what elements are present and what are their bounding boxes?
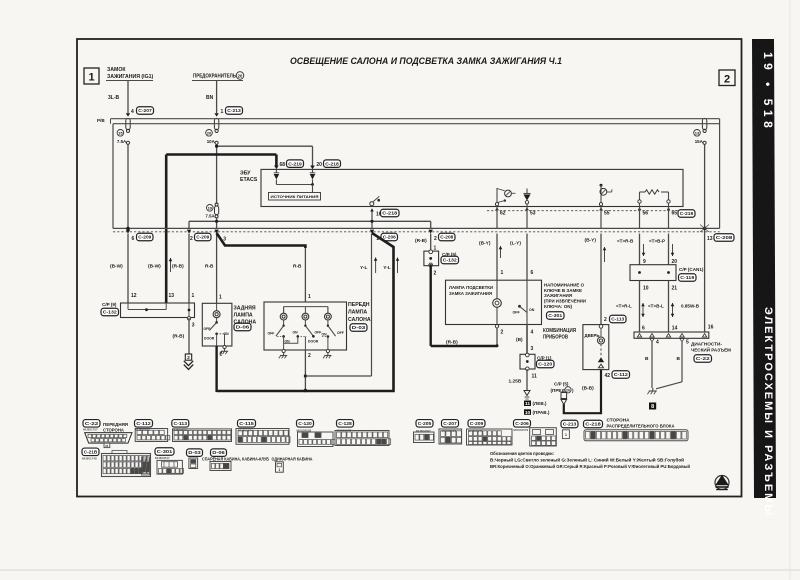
svg-text:MU801757: MU801757: [83, 428, 98, 432]
svg-text:15A: 15A: [695, 139, 704, 144]
svg-text:КЛЮЧЕ В ЗАМКЕ: КЛЮЧЕ В ЗАМКЕ: [544, 288, 582, 293]
svg-text:ЗАЖИГАНИЯ (IG1): ЗАЖИГАНИЯ (IG1): [107, 74, 154, 80]
svg-text:10A: 10A: [207, 139, 216, 144]
svg-text:(B-Y): (B-Y): [585, 238, 597, 244]
svg-text:ЗАДНЯЯ: ЗАДНЯЯ: [234, 305, 256, 311]
svg-text:13: 13: [695, 131, 700, 136]
svg-text:C-213: C-213: [227, 108, 241, 113]
svg-text:14: 14: [672, 326, 678, 332]
svg-text:20: 20: [566, 389, 570, 393]
svg-text:62: 62: [500, 210, 506, 216]
svg-text:САЛОНА: САЛОНА: [348, 317, 371, 323]
svg-text:C-206: C-206: [383, 235, 396, 240]
svg-text:11: 11: [532, 374, 538, 380]
svg-text:11: 11: [525, 401, 530, 407]
svg-text:13: 13: [707, 236, 713, 242]
svg-text:C-213: C-213: [563, 422, 577, 427]
svg-text:56: 56: [643, 210, 649, 216]
svg-text:C-218: C-218: [382, 211, 398, 216]
svg-text:(B-W): (B-W): [148, 264, 161, 270]
svg-text:C-218: C-218: [325, 161, 339, 166]
svg-text:<T>R-L: <T>R-L: [616, 304, 632, 309]
svg-text:(R-B): (R-B): [415, 238, 427, 244]
svg-text:Y-L: Y-L: [383, 265, 391, 271]
svg-text:C-301: C-301: [548, 313, 562, 318]
svg-text:ОДИНАРНАЯ КАБИНА: ОДИНАРНАЯ КАБИНА: [272, 457, 314, 462]
svg-text:<T>B-L: <T>B-L: [648, 304, 664, 309]
svg-text:C/P (CAN1): C/P (CAN1): [679, 267, 704, 272]
svg-text:1: 1: [565, 433, 567, 437]
svg-text:42: 42: [605, 373, 611, 379]
svg-text:MU801579: MU801579: [514, 428, 529, 432]
svg-text:C-219: C-219: [288, 161, 302, 166]
svg-text:2: 2: [434, 271, 437, 277]
svg-text:ЧЕСКИЙ РАЗЪЕМ: ЧЕСКИЙ РАЗЪЕМ: [691, 346, 731, 353]
svg-text:3: 3: [192, 323, 195, 329]
svg-text:ЛАМПА: ЛАМПА: [348, 310, 367, 316]
svg-text:6: 6: [531, 270, 534, 276]
svg-text:ПЕРЕДНЯЯ: ПЕРЕДНЯЯ: [103, 422, 128, 427]
svg-text:OFF: OFF: [204, 327, 211, 331]
svg-text:ПЕРЕДН: ПЕРЕДН: [348, 302, 370, 308]
svg-text:C-205: C-205: [418, 421, 432, 426]
svg-text:C-120: C-120: [538, 362, 552, 367]
svg-text:C-112: C-112: [136, 421, 151, 426]
svg-text:C-208: C-208: [716, 235, 733, 240]
svg-text:ЭБУ: ЭБУ: [240, 171, 251, 177]
svg-text:C-113: C-113: [611, 317, 624, 322]
svg-text:1: 1: [221, 109, 224, 115]
svg-text:C-132: C-132: [103, 310, 117, 315]
svg-text:C-132: C-132: [443, 258, 457, 263]
svg-text:D-03: D-03: [188, 450, 201, 455]
svg-text:C-209: C-209: [138, 235, 151, 240]
svg-text:20: 20: [316, 162, 322, 168]
svg-text:(B-W): (B-W): [110, 264, 123, 270]
svg-text:СТОРОНА: СТОРОНА: [607, 418, 631, 423]
svg-text:(L-Y): (L-Y): [510, 240, 521, 246]
svg-text:1: 1: [88, 72, 94, 84]
svg-text:C-208: C-208: [440, 235, 453, 240]
svg-text:(ПРАВ.): (ПРАВ.): [533, 410, 550, 415]
svg-text:2: 2: [308, 353, 311, 359]
svg-text:ON: ON: [293, 330, 299, 334]
svg-text:9: 9: [643, 259, 646, 265]
svg-text:2: 2: [604, 317, 607, 323]
svg-text:65: 65: [672, 210, 678, 216]
svg-text:2: 2: [724, 74, 730, 86]
svg-text:20: 20: [672, 259, 678, 265]
svg-text:B: B: [645, 356, 649, 362]
svg-text:ЗАЖИГАНИЯ: ЗАЖИГАНИЯ: [544, 293, 572, 298]
svg-text:C/P (5): C/P (5): [554, 381, 569, 386]
svg-text:R-B: R-B: [205, 264, 214, 270]
svg-text:D-06: D-06: [236, 325, 250, 330]
svg-text:ЗАМКА ЗАЖИГАНИЯ: ЗАМКА ЗАЖИГАНИЯ: [449, 291, 492, 296]
svg-text:55: 55: [604, 210, 610, 216]
svg-text:2: 2: [434, 236, 437, 242]
svg-text:21: 21: [672, 286, 678, 292]
svg-text:ЭЛЕКТРОСХЕМЫ И РАЗЪЕМЫ: ЭЛЕКТРОСХЕМЫ И РАЗЪЕМЫ: [762, 307, 774, 517]
svg-text:4: 4: [131, 109, 134, 115]
svg-text:Обозначения цветов проводки:: Обозначения цветов проводки:: [490, 450, 554, 456]
svg-text:1: 1: [501, 270, 504, 276]
svg-text:1: 1: [308, 294, 311, 300]
svg-text:0.85W-B: 0.85W-B: [681, 304, 700, 309]
svg-text:2: 2: [187, 355, 190, 361]
svg-text:(R-B): (R-B): [173, 334, 185, 340]
svg-text:OFF: OFF: [315, 330, 322, 334]
svg-text:ON: ON: [322, 332, 328, 336]
svg-text:BR:Коричневый O:Оранжевый GR:С: BR:Коричневый O:Оранжевый GR:Серый R:Кра…: [490, 464, 690, 469]
svg-text:C-209: C-209: [196, 235, 209, 240]
svg-text:C/P (9): C/P (9): [102, 302, 117, 307]
svg-text:19 • 518: 19 • 518: [761, 52, 775, 132]
svg-text:ON: ON: [529, 308, 535, 312]
svg-text:16: 16: [708, 325, 714, 331]
svg-text:(R-B): (R-B): [446, 340, 458, 346]
svg-text:C-112: C-112: [614, 372, 628, 377]
svg-text:3: 3: [531, 346, 534, 352]
svg-text:4: 4: [656, 340, 659, 346]
svg-text:2: 2: [190, 236, 193, 242]
svg-text:Y-L: Y-L: [360, 265, 368, 271]
svg-text:1: 1: [219, 295, 222, 301]
svg-text:C-113: C-113: [174, 421, 188, 426]
svg-text:5: 5: [686, 340, 689, 346]
svg-text:MU801748: MU801748: [82, 457, 97, 461]
svg-text:OFF: OFF: [513, 310, 521, 314]
svg-text:C-21B: C-21B: [84, 449, 98, 454]
svg-text:10: 10: [525, 410, 531, 416]
svg-text:ДИАГНОСТИ-: ДИАГНОСТИ-: [691, 342, 722, 347]
svg-text:8: 8: [651, 404, 654, 410]
svg-text:В:Черный LG:Светло зеленый G:З: В:Черный LG:Светло зеленый G:Зеленый L: …: [490, 458, 684, 463]
svg-text:C-128: C-128: [338, 421, 352, 426]
svg-text:1: 1: [279, 468, 281, 472]
svg-text:7.5A: 7.5A: [205, 213, 215, 218]
svg-text:3L-B: 3L-B: [108, 95, 120, 101]
svg-text:2: 2: [220, 352, 223, 358]
svg-text:D-03: D-03: [352, 325, 366, 330]
svg-text:<T>R-B: <T>R-B: [617, 239, 634, 244]
svg-text:ON: ON: [285, 339, 291, 343]
svg-text:ПРЕДОХРАНИТЕЛЬ: ПРЕДОХРАНИТЕЛЬ: [193, 74, 236, 80]
svg-text:СТОРОНА: СТОРОНА: [103, 427, 125, 432]
svg-text:4: 4: [531, 330, 534, 336]
svg-text:КЛЮЧА: ON): КЛЮЧА: ON): [544, 304, 573, 309]
svg-text:DOOR: DOOR: [308, 340, 319, 344]
svg-text:MU803547: MU803547: [155, 456, 170, 460]
svg-text:13: 13: [169, 293, 175, 299]
svg-text:РАСПРЕДЕЛИТЕЛЬНОГО БЛОКА: РАСПРЕДЕЛИТЕЛЬНОГО БЛОКА: [607, 424, 676, 429]
svg-text:C-119: C-119: [680, 275, 694, 280]
svg-text:53: 53: [530, 210, 536, 216]
svg-text:C-301: C-301: [157, 449, 173, 454]
svg-text:ЛАМПА: ЛАМПА: [234, 312, 253, 318]
svg-text:C-218: C-218: [585, 422, 601, 427]
svg-text:(R-B): (R-B): [172, 264, 184, 270]
svg-text:(ПРИ ИЗВЛЕЧЕНИИ: (ПРИ ИЗВЛЕЧЕНИИ: [544, 299, 586, 304]
svg-text:D-06: D-06: [212, 450, 225, 455]
svg-text:СПАРЕНАЯ КАБИНА, КАБИНА-КЛУБ: СПАРЕНАЯ КАБИНА, КАБИНА-КЛУБ: [202, 457, 269, 462]
svg-text:1.25B: 1.25B: [509, 379, 522, 385]
svg-text:ОСВЕЩЕНИЕ САЛОНА И ПОДСВЕТКА З: ОСВЕЩЕНИЕ САЛОНА И ПОДСВЕТКА ЗАМКА ЗАЖИГ…: [290, 56, 562, 66]
svg-text:20: 20: [207, 131, 212, 136]
svg-text:C-22: C-22: [85, 421, 99, 426]
svg-text:OFF: OFF: [268, 331, 275, 335]
svg-text:C-209: C-209: [470, 421, 484, 426]
svg-text:ЗАМОК: ЗАМОК: [107, 67, 126, 73]
svg-text:21: 21: [105, 444, 109, 448]
svg-text:C-207: C-207: [443, 421, 457, 426]
svg-text:P/B: P/B: [97, 118, 105, 123]
svg-text:ИСТОЧНИК ПИТАНИЯ: ИСТОЧНИК ПИТАНИЯ: [271, 195, 320, 199]
svg-text:C-206: C-206: [515, 421, 529, 426]
svg-text:<T>B-P: <T>B-P: [649, 239, 665, 244]
svg-text:C-219: C-219: [680, 211, 694, 216]
svg-text:(B-B): (B-B): [582, 386, 594, 392]
svg-text:DOOR: DOOR: [204, 336, 215, 340]
svg-text:ЛАМПА ПОДСВЕТКИ: ЛАМПА ПОДСВЕТКИ: [449, 285, 493, 290]
svg-text:C-115: C-115: [239, 421, 254, 426]
svg-text:(ЛЕВ.): (ЛЕВ.): [533, 401, 547, 406]
svg-text:1: 1: [192, 293, 195, 299]
svg-text:2: 2: [501, 330, 504, 336]
svg-text:10: 10: [643, 286, 649, 292]
svg-text:B: B: [677, 356, 681, 362]
svg-text:C-207: C-207: [138, 108, 152, 113]
svg-text:OFF: OFF: [337, 331, 344, 335]
svg-text:C-22: C-22: [696, 356, 711, 361]
svg-text:19: 19: [208, 206, 213, 211]
svg-text:7.5A: 7.5A: [117, 139, 127, 144]
svg-text:6: 6: [642, 326, 645, 332]
svg-text:НАПОМИНАНИЕ О: НАПОМИНАНИЕ О: [544, 283, 585, 288]
svg-text:R-B: R-B: [293, 264, 302, 270]
svg-text:ДВЕРЬ: ДВЕРЬ: [585, 333, 600, 338]
svg-text:BN: BN: [206, 95, 214, 101]
svg-text:ПРИБОРОВ: ПРИБОРОВ: [543, 334, 568, 340]
svg-text:20: 20: [238, 73, 243, 78]
svg-text:68: 68: [280, 162, 286, 168]
svg-text:(B-Y): (B-Y): [479, 240, 491, 246]
svg-text:15: 15: [118, 131, 123, 136]
svg-text:6: 6: [132, 236, 135, 242]
svg-text:C-120: C-120: [298, 421, 312, 426]
svg-text:(B): (B): [516, 337, 523, 343]
svg-text:12: 12: [131, 293, 137, 299]
svg-text:КОМБИНАЦИЯ: КОМБИНАЦИЯ: [543, 328, 576, 334]
svg-text:ETACS: ETACS: [240, 177, 258, 183]
